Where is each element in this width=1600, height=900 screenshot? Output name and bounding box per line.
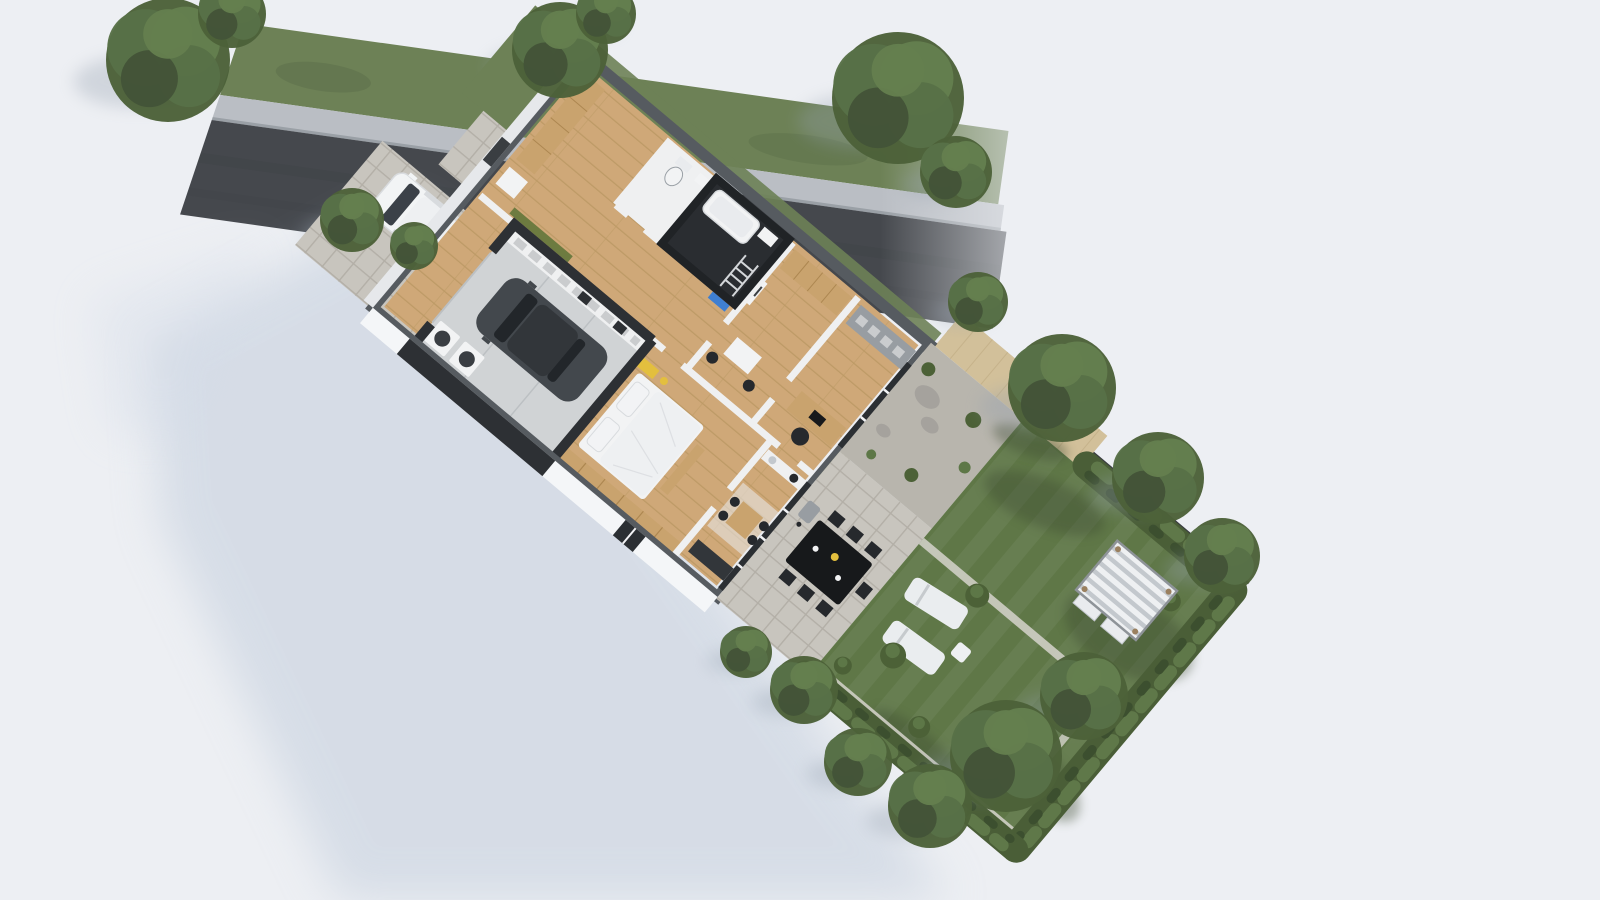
tree <box>1008 334 1116 442</box>
canopy-blob <box>404 226 423 245</box>
canopy-blob <box>339 194 365 220</box>
canopy-blob <box>942 142 971 171</box>
tree <box>920 136 992 208</box>
canopy-blob <box>736 631 757 652</box>
canopy-blob <box>1207 525 1237 555</box>
tree <box>1184 518 1260 594</box>
canopy-blob <box>913 772 947 806</box>
tree <box>824 728 892 796</box>
canopy-blob <box>541 11 579 49</box>
tree <box>948 272 1008 332</box>
tree <box>1112 432 1204 524</box>
tree <box>390 222 438 270</box>
tree <box>320 188 384 252</box>
canopy-blob <box>984 710 1029 755</box>
canopy-blob <box>143 9 193 59</box>
canopy-blob <box>872 44 925 97</box>
canopy-blob <box>844 734 871 761</box>
canopy-blob <box>1140 440 1177 477</box>
canopy-blob <box>790 662 817 689</box>
tree <box>770 656 838 724</box>
tree <box>888 764 972 848</box>
tree <box>720 626 772 678</box>
site-plan-render <box>0 0 1600 900</box>
canopy-blob <box>1066 660 1101 695</box>
canopy-blob <box>966 277 990 301</box>
canopy-blob <box>1040 344 1083 387</box>
